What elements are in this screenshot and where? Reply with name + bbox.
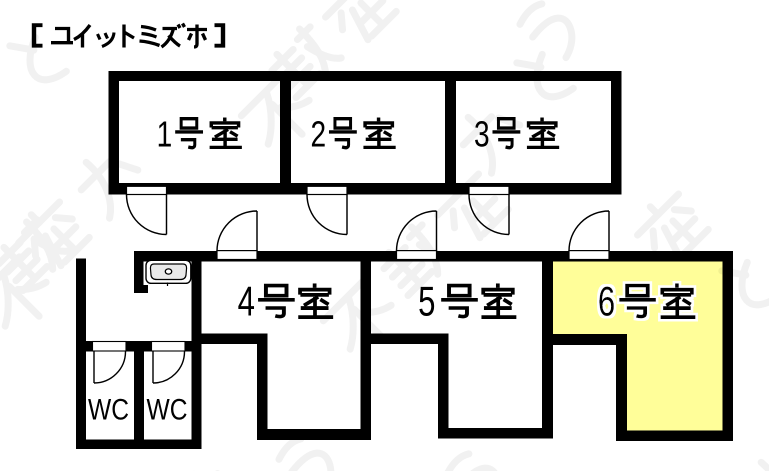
svg-text:6: 6 — [598, 278, 615, 324]
svg-text:WC: WC — [88, 392, 129, 426]
svg-text:3: 3 — [474, 114, 490, 154]
svg-text:5: 5 — [418, 278, 435, 324]
svg-text:2: 2 — [310, 114, 326, 154]
svg-text:4: 4 — [238, 278, 255, 324]
svg-text:WC: WC — [147, 392, 188, 426]
svg-text:1: 1 — [157, 114, 173, 154]
